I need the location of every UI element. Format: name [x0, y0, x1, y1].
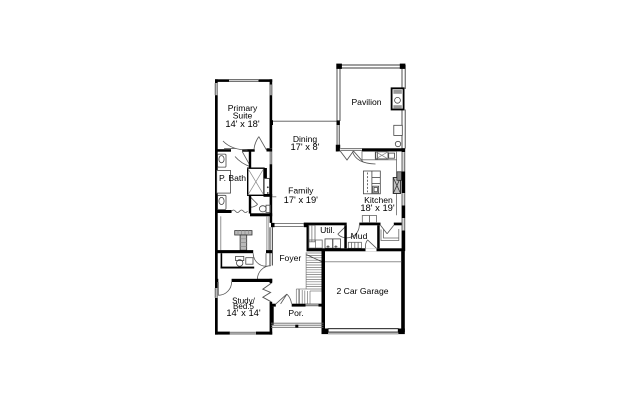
svg-text:Util.: Util.: [320, 225, 335, 235]
svg-text:P. Bath: P. Bath: [219, 173, 246, 183]
svg-text:18' x 19': 18' x 19': [360, 202, 395, 213]
svg-text:Por.: Por.: [288, 308, 303, 318]
svg-text:17' x 8': 17' x 8': [290, 141, 319, 152]
svg-text:Mud: Mud: [351, 231, 368, 241]
svg-text:Foyer: Foyer: [279, 253, 301, 263]
svg-text:Pavilion: Pavilion: [351, 97, 381, 107]
svg-text:17' x 19': 17' x 19': [284, 194, 319, 205]
svg-text:14' x 14': 14' x 14': [226, 307, 261, 318]
svg-text:14' x 18': 14' x 18': [225, 118, 260, 129]
svg-text:2 Car Garage: 2 Car Garage: [336, 286, 388, 296]
